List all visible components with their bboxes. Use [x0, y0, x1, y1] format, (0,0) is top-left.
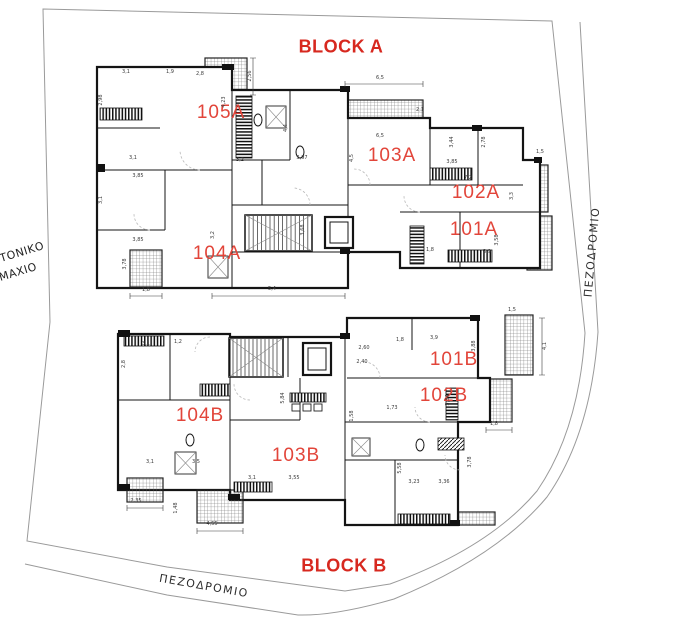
dimension-label: 1,8 [490, 421, 498, 427]
dimension-label: 3,1 [248, 475, 256, 481]
dimension-label: 2,35 [130, 498, 141, 504]
unit-label-104A: 104A [193, 243, 241, 265]
dimension-label: 3,3 [509, 192, 515, 200]
dimension-label: 3,23 [408, 479, 419, 485]
dimension-label: 3,88 [471, 340, 477, 351]
site-plan-canvas: BLOCK A BLOCK B ΠΕΖΟΔΡΟΜΙΟ ΠΕΖΟΔΡΟΜΙΟ ΤΟ… [0, 0, 689, 624]
dimension-label: 3,55 [288, 475, 299, 481]
dimension-label: 2,98 [98, 94, 104, 105]
unit-label-101B: 101B [430, 349, 478, 371]
dimension-label: 3,44 [449, 136, 455, 147]
unit-label-102B: 102B [420, 385, 468, 407]
unit-label-101A: 101A [450, 219, 498, 241]
elevator-b [303, 343, 331, 375]
dimension-label: 1,8 [426, 247, 434, 253]
unit-label-104B: 104B [176, 405, 224, 427]
dimension-label: 5,84 [280, 392, 286, 403]
kitchen-b2 [398, 514, 450, 524]
dimension-label: 4,5 [349, 154, 355, 162]
dimension-label: 4,1 [542, 342, 548, 350]
dimension-label: 3,5 [192, 459, 200, 465]
dimension-label: 3,34 [445, 394, 451, 405]
block-b-label: BLOCK B [301, 556, 387, 577]
pergola-b [438, 438, 464, 450]
kitchen-b1 [200, 384, 230, 396]
unit-label-103B: 103B [272, 445, 320, 467]
dimension-label: 1,48 [173, 502, 179, 513]
dimension-label: 3,1 [142, 341, 150, 347]
dimension-label: 3,1 [122, 69, 130, 75]
dimension-label: 2,8 [121, 360, 127, 368]
dimension-label: 2,40 [356, 359, 367, 365]
dimension-label: 1,58 [349, 410, 355, 421]
dimension-label: 3,68 [300, 224, 306, 235]
dimension-label: 4,4 [283, 124, 289, 132]
dimension-label: 3,1 [146, 459, 154, 465]
dimension-label: 1,5 [508, 307, 516, 313]
dimension-label: 2,1 [416, 107, 424, 113]
dimension-label: 3,2 [236, 157, 244, 163]
dimension-label: 2,8 [196, 71, 204, 77]
unit-label-102A: 102A [452, 182, 500, 204]
dimension-label: 5,58 [397, 462, 403, 473]
dimension-label: 2,56 [247, 70, 253, 81]
dimension-label: 3,2 [210, 231, 216, 239]
dimension-label: 7,2 [464, 175, 472, 181]
dimension-label: 3,36 [438, 479, 449, 485]
dimension-label: 3,85 [446, 159, 457, 165]
elevator-a [325, 217, 353, 248]
dimension-label: 3,1 [129, 155, 137, 161]
dimension-label: 1,5 [536, 149, 544, 155]
dimension-label: 3,85 [132, 173, 143, 179]
dimension-label: 6,5 [376, 133, 384, 139]
dimension-label: 4,55 [206, 521, 217, 527]
dimension-label: 3,9 [483, 249, 491, 255]
balcony-a-bottom [130, 250, 162, 287]
dimension-label: 2,78 [481, 136, 487, 147]
dimension-label: 2,60 [358, 345, 369, 351]
dimension-label: 4,23 [221, 96, 227, 107]
wardrobe-b2 [234, 482, 272, 492]
dimension-label: 1,73 [386, 405, 397, 411]
dimension-label: 3,78 [467, 456, 473, 467]
dimension-label: 1,9 [166, 69, 174, 75]
kitchen-a3 [410, 226, 424, 264]
dimension-label: 6,5 [376, 75, 384, 81]
dimension-label: 1,8 [396, 337, 404, 343]
dimension-label: 5,4 [268, 286, 276, 292]
unit-label-103A: 103A [368, 145, 416, 167]
wardrobe-a1 [100, 108, 142, 120]
dimension-label: 3,97 [296, 155, 307, 161]
dimension-label: 1,2 [174, 339, 182, 345]
dimension-label: 3,85 [132, 237, 143, 243]
dimension-label: 3,58 [494, 234, 500, 245]
dimension-label: 3,78 [122, 258, 128, 269]
dimension-label: 3,9 [430, 335, 438, 341]
block-a-label: BLOCK A [299, 37, 384, 58]
island-b [290, 393, 326, 402]
dimension-label: 3,1 [98, 196, 104, 204]
balcony-b-right-1 [505, 315, 533, 375]
dimension-label: 1,8 [142, 287, 150, 293]
